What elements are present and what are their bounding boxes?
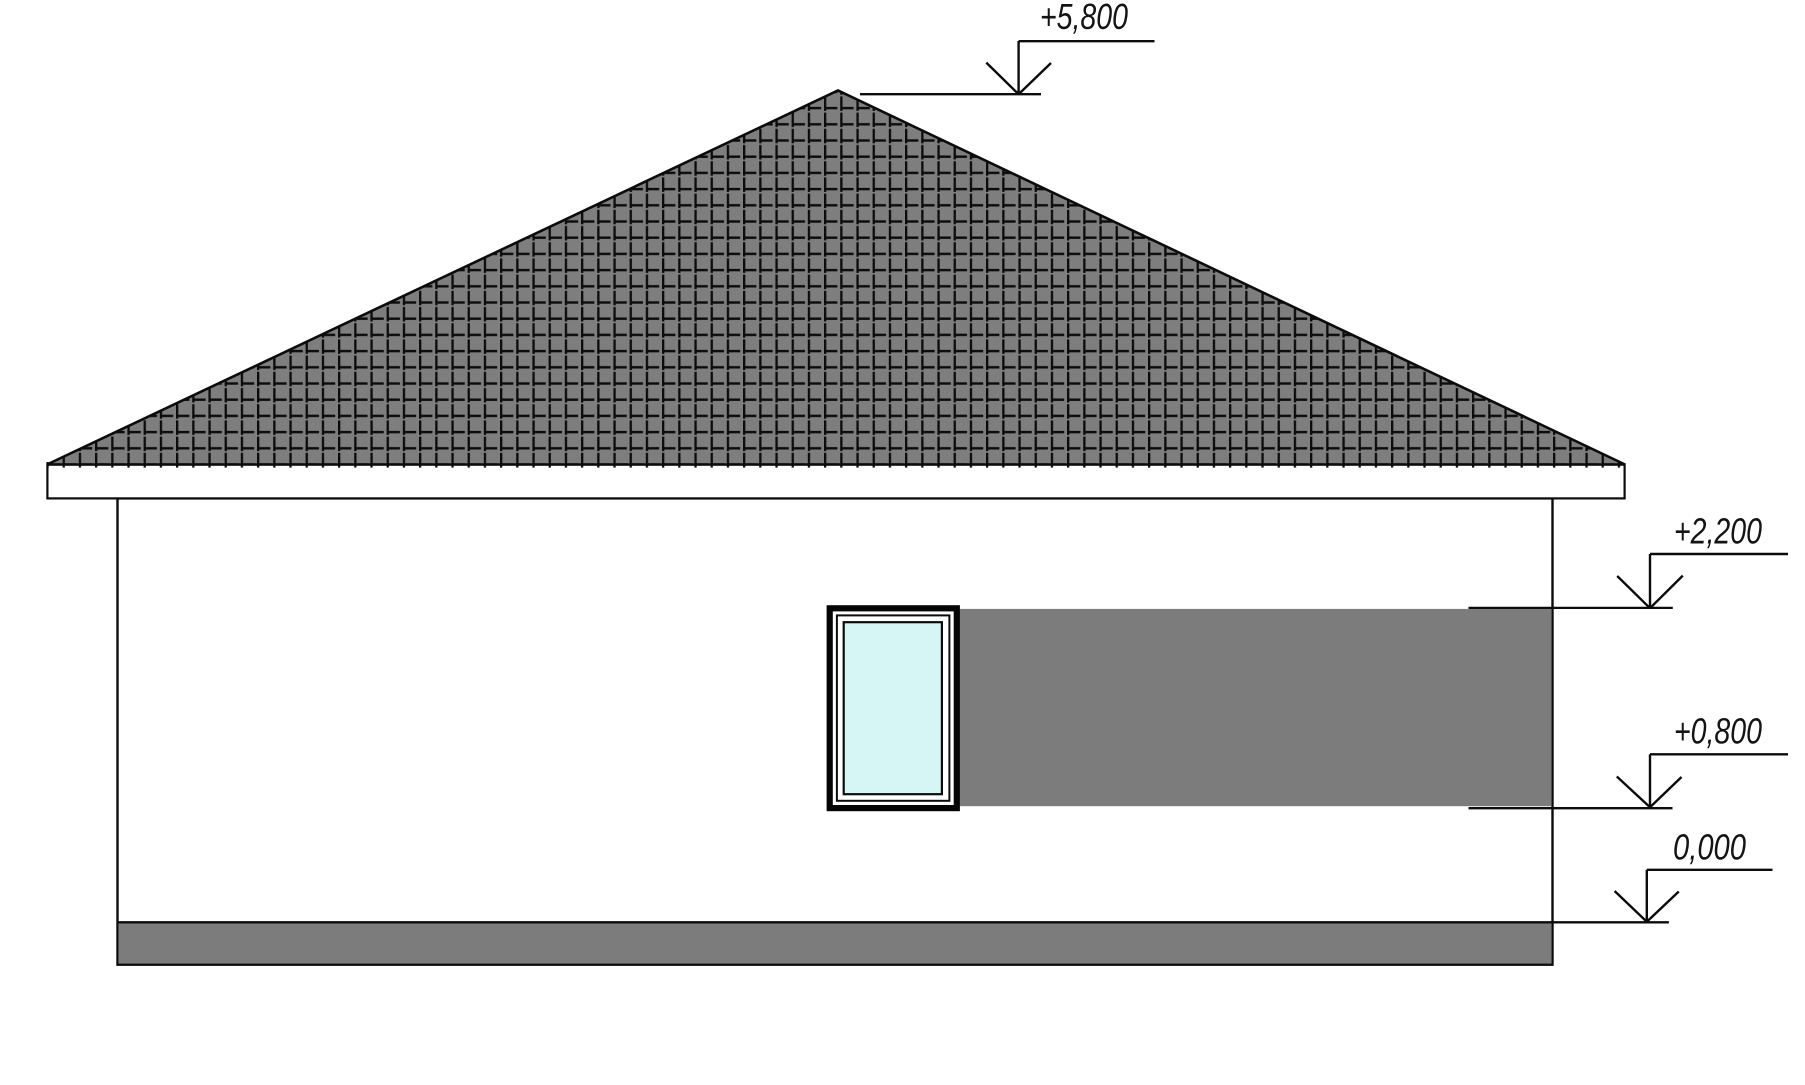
svg-text:+0,800: +0,800: [1674, 710, 1762, 751]
svg-text:+2,200: +2,200: [1674, 510, 1762, 551]
svg-text:+5,800: +5,800: [1040, 0, 1128, 37]
svg-text:0,000: 0,000: [1673, 826, 1746, 867]
